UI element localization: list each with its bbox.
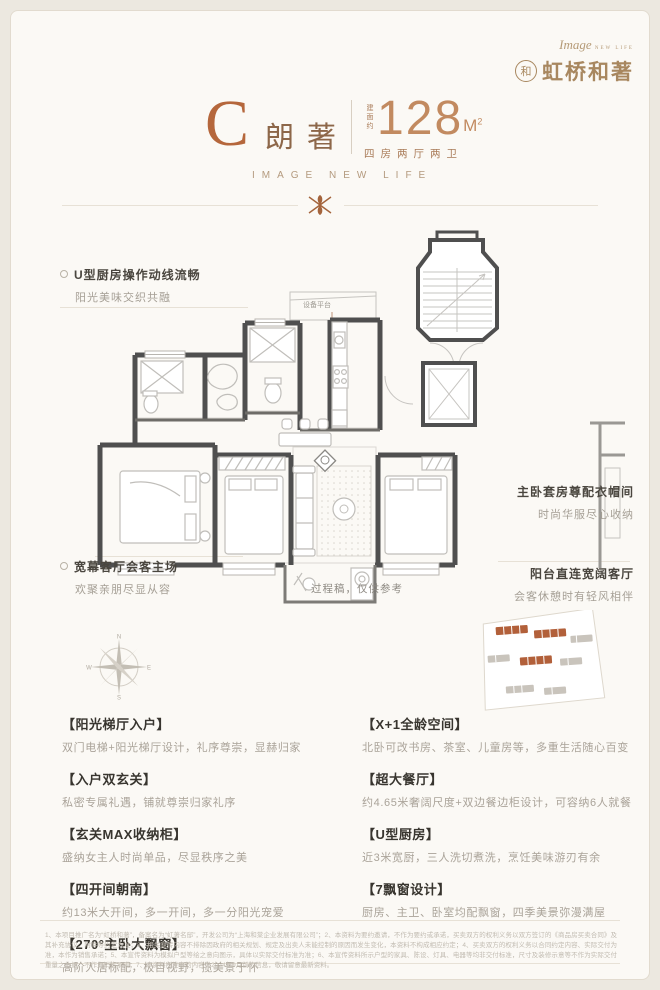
- feature-item: 【阳光梯厅入户】 双门电梯+阳光梯厅设计，礼序尊崇，显赫归家: [62, 714, 354, 755]
- logo-script-word: Image: [559, 37, 592, 52]
- svg-text:W: W: [86, 666, 92, 672]
- poster-page: Image NEW LIFE 和 虹桥和著 C 朗著 建面约 128 M2 四房…: [0, 0, 660, 990]
- feature-desc: 私密专属礼遇，铺就尊崇归家礼序: [62, 794, 354, 810]
- feature-title: 【超大餐厅】: [362, 769, 624, 788]
- annotation-balcony: 阳台直连宽阔客厅 会客休憩时有轻风相伴: [514, 565, 634, 604]
- logo-script-text: Image NEW LIFE: [515, 40, 634, 54]
- compass-icon: N E S W: [86, 634, 152, 700]
- feature-item: 【玄关MAX收纳柜】 盛纳女主人时尚单品，尽显秩序之美: [62, 824, 354, 865]
- annotation-livingroom: 宽幕客厅会客主场 欢聚亲朋尽显从容: [60, 558, 178, 597]
- feature-desc: 近3米宽厨，三人洗切煮洗，烹饪美味游刃有余: [362, 849, 624, 865]
- logo-mark-icon: 和: [515, 60, 537, 82]
- platform-label: 设备平台: [303, 300, 331, 309]
- living-rug: [314, 450, 371, 556]
- feature-title: 【四开间朝南】: [62, 879, 354, 898]
- header-rule-left: [62, 205, 298, 206]
- feature-title: 【入户双玄关】: [62, 769, 354, 788]
- feature-desc: 盛纳女主人时尚单品，尽显秩序之美: [62, 849, 354, 865]
- feature-desc: 约4.65米奢阔尺度+双边餐边柜设计，可容纳6人就餐: [362, 794, 624, 810]
- feature-list-right: 【X+1全龄空间】 北卧可改书房、茶室、儿童房等，多重生活随心百变 【超大餐厅】…: [362, 714, 624, 934]
- feature-title: 【7飘窗设计】: [362, 879, 624, 898]
- feature-desc: 厨房、主卫、卧室均配飘窗，四季美景弥漫满屋: [362, 904, 624, 920]
- title-divider: [351, 100, 352, 154]
- site-key-plan: [478, 610, 606, 712]
- logo-brand-name: 虹桥和著: [542, 56, 634, 86]
- annotation-desc: 阳光美味交织共融: [60, 289, 201, 305]
- draft-note: 过程稿，仅供参考: [311, 582, 403, 595]
- feature-item: 【7飘窗设计】 厨房、主卫、卧室均配飘窗，四季美景弥漫满屋: [362, 879, 624, 920]
- header-rule-right: [344, 205, 598, 206]
- elevator: [423, 363, 475, 425]
- unit-name: 朗著: [265, 114, 349, 156]
- feature-desc: 双门电梯+阳光梯厅设计，礼序尊崇，显赫归家: [62, 739, 354, 755]
- area-block: 建面约 128 M2 四房两厅两卫: [364, 96, 482, 161]
- feature-desc: 北卧可改书房、茶室、儿童房等，多重生活随心百变: [362, 739, 624, 755]
- area-value: 128: [377, 96, 463, 142]
- annotation-title: 阳台直连宽阔客厅: [514, 565, 634, 582]
- feature-item: 【四开间朝南】 约13米大开间，多一开间，多一分阳光宠爱: [62, 879, 354, 920]
- unit-letter: C: [205, 94, 249, 154]
- area-prefix: 建面约: [364, 104, 374, 131]
- ornament-icon: [305, 193, 335, 217]
- annotation-title: 宽幕客厅会客主场: [60, 558, 178, 575]
- svg-text:N: N: [117, 635, 121, 641]
- annotation-desc: 欢聚亲朋尽显从容: [60, 581, 178, 597]
- annotation-master-suite: 主卧套房尊配衣帽间 时尚华服尽心收纳: [517, 483, 634, 522]
- tagline: IMAGE NEW LIFE: [252, 170, 432, 181]
- feature-title: 【X+1全龄空间】: [362, 714, 624, 733]
- feature-item: 【入户双玄关】 私密专属礼遇，铺就尊崇归家礼序: [62, 769, 354, 810]
- annotation-desc: 会客休憩时有轻风相伴: [514, 588, 634, 604]
- room-layout-text: 四房两厅两卫: [364, 146, 482, 161]
- svg-text:S: S: [117, 696, 121, 701]
- feature-title: 【U型厨房】: [362, 824, 624, 843]
- feature-item: 【U型厨房】 近3米宽厨，三人洗切煮洗，烹饪美味游刃有余: [362, 824, 624, 865]
- annotation-kitchen: U型厨房操作动线流畅 阳光美味交织共融: [60, 266, 201, 305]
- annotation-title: U型厨房操作动线流畅: [60, 266, 201, 283]
- feature-title: 【阳光梯厅入户】: [62, 714, 354, 733]
- feature-item: 【超大餐厅】 约4.65米奢阔尺度+双边餐边柜设计，可容纳6人就餐: [362, 769, 624, 810]
- feature-desc: 约13米大开间，多一开间，多一分阳光宠爱: [62, 904, 354, 920]
- annotation-title: 主卧套房尊配衣帽间: [517, 483, 634, 500]
- stair-core: [418, 232, 497, 340]
- annotation-desc: 时尚华服尽心收纳: [517, 506, 634, 522]
- area-unit: M2: [463, 116, 482, 136]
- unit-title: C 朗著 建面约 128 M2 四房两厅两卫: [205, 94, 482, 161]
- svg-text:E: E: [147, 666, 151, 672]
- disclaimer-text: 1、本项目推广名为“虹桥和著”，备案名为“虹著名邸”，开发公司为“上海和棠企业发…: [45, 931, 617, 971]
- brand-logo: Image NEW LIFE 和 虹桥和著: [515, 40, 634, 86]
- logo-script-sub: NEW LIFE: [595, 46, 634, 51]
- feature-item: 【X+1全龄空间】 北卧可改书房、茶室、儿童房等，多重生活随心百变: [362, 714, 624, 755]
- feature-title: 【玄关MAX收纳柜】: [62, 824, 354, 843]
